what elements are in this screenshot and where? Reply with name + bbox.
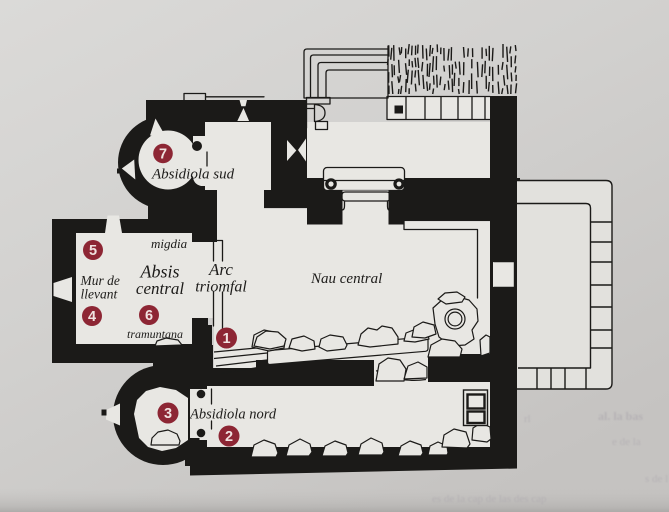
svg-text:triomfal: triomfal [195,279,247,296]
svg-text:Absidiola nord: Absidiola nord [189,407,277,423]
svg-text:al. la bas: al. la bas [598,409,643,423]
svg-text:e de la: e de la [612,436,641,448]
svg-text:migdia: migdia [151,236,188,251]
svg-text:4: 4 [88,309,96,325]
svg-text:Absidiola sud: Absidiola sud [151,167,235,183]
svg-text:7: 7 [159,147,167,163]
svg-text:llevant: llevant [81,287,119,302]
svg-text:Arc: Arc [208,260,233,279]
svg-text:central: central [136,279,184,298]
svg-text:2: 2 [225,429,233,445]
svg-text:es de la cap de las des cap: es de la cap de las des cap [432,493,547,505]
svg-text:5: 5 [89,243,97,259]
svg-text:rl: rl [524,413,531,425]
svg-text:s de l: s de l [645,473,668,485]
svg-text:tramuntana: tramuntana [127,327,183,341]
svg-text:6: 6 [145,308,153,324]
svg-text:1: 1 [222,331,230,347]
svg-text:3: 3 [164,406,172,422]
svg-text:Nau central: Nau central [310,271,382,287]
